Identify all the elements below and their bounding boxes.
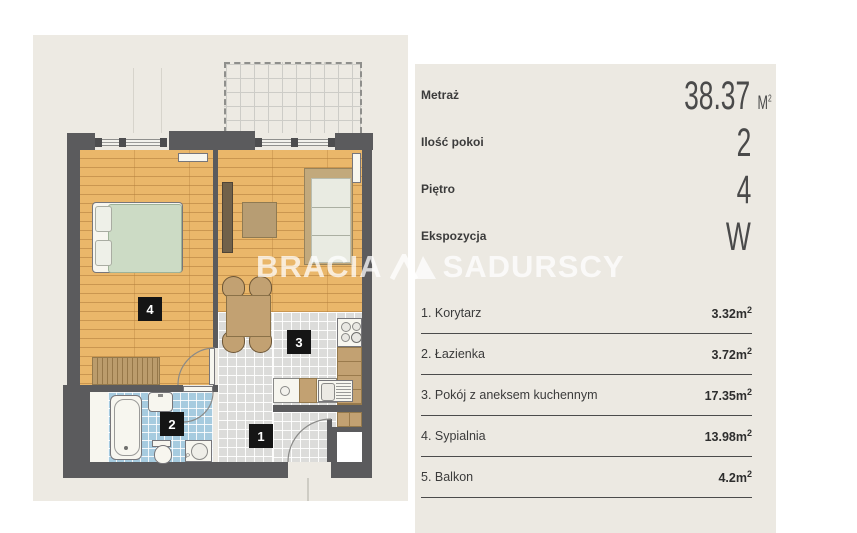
room-label-bedroom: 4 <box>138 297 162 321</box>
room-area-unit: m <box>736 348 747 362</box>
room-area: 13.98m2 <box>705 428 752 444</box>
room-label-living: 3 <box>287 330 311 354</box>
room-row: 2. Łazienka 3.72m2 <box>421 334 752 375</box>
metric-label: Piętro <box>421 182 455 196</box>
room-area-sup: 2 <box>747 346 752 356</box>
metric-label: Metraż <box>421 88 459 102</box>
room-list: 1. Korytarz 3.32m2 2. Łazienka 3.72m2 3.… <box>415 293 776 498</box>
room-name: 3. Pokój z aneksem kuchennym <box>421 388 597 402</box>
room-row: 4. Sypialnia 13.98m2 <box>421 416 752 457</box>
room-area: 4.2m2 <box>718 469 752 485</box>
listing-page: P 4 3 2 1 Metraż 38.37 M2 Ilość pokoi 2 <box>0 0 857 533</box>
metric-value: 38.37 M2 <box>684 76 772 116</box>
metric-label: Ekspozycja <box>421 229 486 243</box>
area-number: 38.37 <box>684 74 750 118</box>
room-area-unit: m <box>736 471 747 485</box>
room-label-text: 1 <box>257 429 264 444</box>
metric-value: 4 <box>736 170 751 210</box>
room-label-corridor: 1 <box>249 424 273 448</box>
room-area-sup: 2 <box>747 387 752 397</box>
room-area-sup: 2 <box>747 305 752 315</box>
metric-value: 2 <box>736 123 751 163</box>
room-area: 3.32m2 <box>712 305 752 321</box>
metrics-section: Metraż 38.37 M2 Ilość pokoi 2 Piętro 4 E… <box>415 64 776 264</box>
metric-value: W <box>726 217 751 257</box>
area-unit-base: M <box>758 93 768 114</box>
room-row: 1. Korytarz 3.32m2 <box>421 293 752 334</box>
brand-word-right: SADURSCY <box>443 249 625 285</box>
room-area-value: 3.72 <box>712 348 736 362</box>
room-area-value: 13.98 <box>705 430 736 444</box>
room-label-text: 3 <box>295 335 302 350</box>
mountain-logo-icon <box>390 254 436 280</box>
room-area: 17.35m2 <box>705 387 752 403</box>
metric-row-rooms: Ilość pokoi 2 <box>415 123 776 170</box>
room-area-value: 4.2 <box>718 471 735 485</box>
room-row: 3. Pokój z aneksem kuchennym 17.35m2 <box>421 375 752 416</box>
room-area-unit: m <box>736 430 747 444</box>
area-unit-sup: 2 <box>768 94 772 105</box>
room-area-unit: m <box>736 307 747 321</box>
room-area-sup: 2 <box>747 428 752 438</box>
metric-row-floor: Piętro 4 <box>415 170 776 217</box>
room-area-value: 17.35 <box>705 389 736 403</box>
metric-label: Ilość pokoi <box>421 135 484 149</box>
room-name: 1. Korytarz <box>421 306 481 320</box>
brand-word-left: BRACIA <box>256 249 383 285</box>
brand-watermark: BRACIA SADURSCY <box>256 249 625 285</box>
room-name: 5. Balkon <box>421 470 473 484</box>
room-row: 5. Balkon 4.2m2 <box>421 457 752 498</box>
room-label-text: 2 <box>168 417 175 432</box>
area-unit: M2 <box>758 93 772 114</box>
room-area-value: 3.32 <box>712 307 736 321</box>
room-area-unit: m <box>736 389 747 403</box>
room-label-text: 4 <box>146 302 153 317</box>
room-label-bathroom: 2 <box>160 412 184 436</box>
room-name: 2. Łazienka <box>421 347 485 361</box>
room-area-sup: 2 <box>747 469 752 479</box>
room-area: 3.72m2 <box>712 346 752 362</box>
room-name: 4. Sypialnia <box>421 429 486 443</box>
details-panel: Metraż 38.37 M2 Ilość pokoi 2 Piętro 4 E… <box>415 64 776 533</box>
metric-row-area: Metraż 38.37 M2 <box>415 76 776 123</box>
